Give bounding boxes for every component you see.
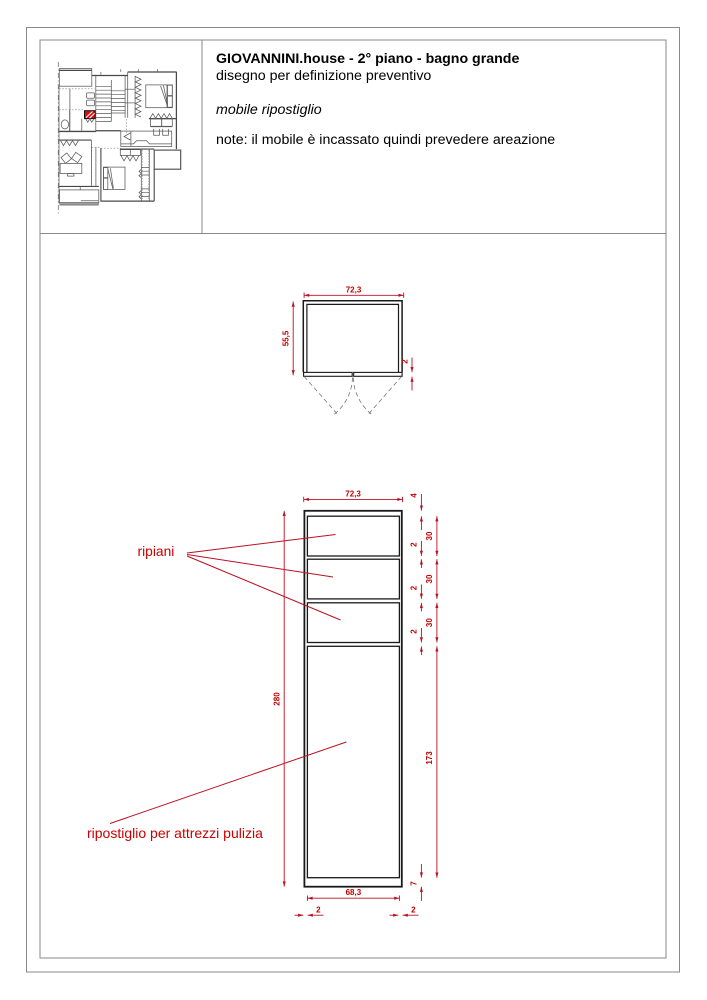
svg-text:55,5: 55,5 — [282, 330, 291, 346]
svg-text:2: 2 — [316, 905, 321, 914]
svg-text:ripostiglio per attrezzi puliz: ripostiglio per attrezzi pulizia — [87, 825, 263, 841]
svg-text:2: 2 — [410, 542, 419, 547]
svg-text:4: 4 — [410, 493, 419, 498]
svg-text:2: 2 — [410, 629, 419, 634]
svg-text:280: 280 — [273, 692, 282, 706]
svg-text:2: 2 — [400, 359, 409, 364]
svg-text:2: 2 — [411, 905, 416, 914]
svg-text:68,3: 68,3 — [346, 888, 362, 897]
svg-text:2: 2 — [410, 585, 419, 590]
svg-text:7: 7 — [410, 881, 419, 886]
svg-text:72,3: 72,3 — [345, 489, 361, 498]
svg-text:ripiani: ripiani — [138, 544, 175, 559]
svg-text:30: 30 — [425, 574, 434, 583]
svg-text:30: 30 — [425, 531, 434, 540]
svg-text:173: 173 — [425, 751, 434, 765]
svg-text:30: 30 — [425, 618, 434, 627]
svg-text:72,3: 72,3 — [346, 285, 362, 294]
